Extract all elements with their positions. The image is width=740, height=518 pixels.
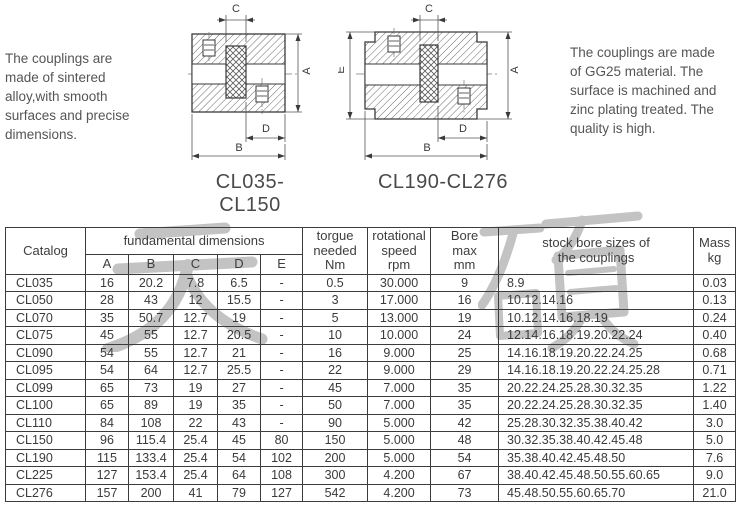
dim-label-d: D xyxy=(459,123,467,135)
spec-table-body: CL0351620.27.86.5-0.530.00098.90.03CL050… xyxy=(6,274,736,502)
dim-label-a: A xyxy=(509,66,518,74)
cell-c: 12.7 xyxy=(174,362,218,380)
cell-speed: 5.000 xyxy=(368,414,431,432)
coupling-drawing-large: C E A D B xyxy=(338,2,518,166)
cell-mass: 0.71 xyxy=(694,362,736,380)
col-header-fundamental-dimensions: fundamental dimensions xyxy=(86,228,303,255)
col-header-dim-e: E xyxy=(261,255,303,275)
cell-bore: 16 xyxy=(431,292,499,310)
col-header-dim-b: B xyxy=(129,255,174,275)
cell-c: 12.7 xyxy=(174,327,218,345)
cell-stock: 8.9 xyxy=(499,274,694,292)
catalog-page: { "notes": { "left": "The couplings are\… xyxy=(0,0,740,518)
cell-e: 80 xyxy=(261,432,303,450)
cell-catalog: CL276 xyxy=(6,484,86,502)
table-row: CL10065891935-507.0003520.22.24.25.28.30… xyxy=(6,397,736,415)
cell-e: - xyxy=(261,379,303,397)
cell-c: 25.4 xyxy=(174,467,218,485)
table-row: CL15096115.425.445801505.0004830.32.35.3… xyxy=(6,432,736,450)
cell-c: 25.4 xyxy=(174,432,218,450)
cell-e: - xyxy=(261,414,303,432)
cell-catalog: CL110 xyxy=(6,414,86,432)
cell-d: 25.5 xyxy=(218,362,261,380)
cell-speed: 30.000 xyxy=(368,274,431,292)
cell-speed: 7.000 xyxy=(368,397,431,415)
dim-label-a: A xyxy=(301,67,312,75)
cell-bore: 35 xyxy=(431,397,499,415)
cell-torque: 5 xyxy=(303,309,368,327)
cell-a: 157 xyxy=(86,484,129,502)
cell-mass: 0.13 xyxy=(694,292,736,310)
cell-bore: 73 xyxy=(431,484,499,502)
cell-speed: 4.200 xyxy=(368,484,431,502)
cell-e: - xyxy=(261,309,303,327)
cell-mass: 1.22 xyxy=(694,379,736,397)
table-row: CL190115133.425.4541022005.0005435.38.40… xyxy=(6,449,736,467)
table-row: CL075455512.720.5-1010.0002412.14.16.18.… xyxy=(6,327,736,345)
cell-speed: 4.200 xyxy=(368,467,431,485)
cell-e: - xyxy=(261,362,303,380)
right-description-text: The couplings are made of GG25 material.… xyxy=(570,44,738,138)
cell-speed: 5.000 xyxy=(368,449,431,467)
drawing-caption-large-range: CL190-CL276 xyxy=(363,171,523,194)
cell-catalog: CL090 xyxy=(6,344,86,362)
col-header-stock-bores: stock bore sizes of the couplings xyxy=(499,228,694,275)
cell-c: 19 xyxy=(174,397,218,415)
cell-d: 21 xyxy=(218,344,261,362)
cell-a: 28 xyxy=(86,292,129,310)
drawing-caption-small-range: CL035-CL150 xyxy=(186,171,314,217)
cell-torque: 300 xyxy=(303,467,368,485)
left-description-text: The couplings are made of sintered alloy… xyxy=(5,50,175,144)
cell-bore: 9 xyxy=(431,274,499,292)
cell-b: 55 xyxy=(129,344,174,362)
cell-speed: 17.000 xyxy=(368,292,431,310)
cell-catalog: CL100 xyxy=(6,397,86,415)
cell-c: 41 xyxy=(174,484,218,502)
cell-stock: 45.48.50.55.60.65.70 xyxy=(499,484,694,502)
cell-a: 127 xyxy=(86,467,129,485)
cell-b: 20.2 xyxy=(129,274,174,292)
cell-catalog: CL095 xyxy=(6,362,86,380)
cell-bore: 19 xyxy=(431,309,499,327)
cell-torque: 3 xyxy=(303,292,368,310)
cell-stock: 14.16.18.19.20.22.24.25 xyxy=(499,344,694,362)
cell-b: 73 xyxy=(129,379,174,397)
cell-c: 12.7 xyxy=(174,344,218,362)
cell-torque: 90 xyxy=(303,414,368,432)
cell-a: 65 xyxy=(86,379,129,397)
dim-label-b: B xyxy=(235,142,242,154)
cell-a: 54 xyxy=(86,344,129,362)
spec-table: Catalog fundamental dimensions torgue ne… xyxy=(5,227,736,502)
cell-d: 79 xyxy=(218,484,261,502)
cell-catalog: CL070 xyxy=(6,309,86,327)
table-row: CL0703550.712.719-513.0001910.12.14.16.1… xyxy=(6,309,736,327)
cell-torque: 542 xyxy=(303,484,368,502)
col-header-dim-d: D xyxy=(218,255,261,275)
cell-mass: 0.68 xyxy=(694,344,736,362)
cell-c: 7.8 xyxy=(174,274,218,292)
cell-stock: 20.22.24.25.28.30.32.35 xyxy=(499,379,694,397)
cell-stock: 12.14.16.18.19.20.22.24 xyxy=(499,327,694,345)
cell-b: 55 xyxy=(129,327,174,345)
cell-stock: 38.40.42.45.48.50.55.60.65 xyxy=(499,467,694,485)
cell-bore: 25 xyxy=(431,344,499,362)
cell-bore: 24 xyxy=(431,327,499,345)
cell-stock: 20.22.24.25.28.30.32.35 xyxy=(499,397,694,415)
cell-torque: 10 xyxy=(303,327,368,345)
col-header-torque: torgue needed Nm xyxy=(303,228,368,275)
cell-torque: 0.5 xyxy=(303,274,368,292)
cell-speed: 7.000 xyxy=(368,379,431,397)
col-header-dim-c: C xyxy=(174,255,218,275)
cell-b: 64 xyxy=(129,362,174,380)
cell-e: - xyxy=(261,327,303,345)
cell-bore: 29 xyxy=(431,362,499,380)
cell-b: 200 xyxy=(129,484,174,502)
cell-torque: 22 xyxy=(303,362,368,380)
table-row: CL090545512.721-169.0002514.16.18.19.20.… xyxy=(6,344,736,362)
cell-bore: 67 xyxy=(431,467,499,485)
cell-e: 108 xyxy=(261,467,303,485)
col-header-mass: Mass kg xyxy=(694,228,736,275)
cell-mass: 0.40 xyxy=(694,327,736,345)
cell-mass: 0.03 xyxy=(694,274,736,292)
cell-speed: 9.000 xyxy=(368,344,431,362)
cell-d: 20.5 xyxy=(218,327,261,345)
table-row: CL27615720041791275424.2007345.48.50.55.… xyxy=(6,484,736,502)
cell-d: 54 xyxy=(218,449,261,467)
cell-e: - xyxy=(261,292,303,310)
cell-bore: 48 xyxy=(431,432,499,450)
cell-d: 45 xyxy=(218,432,261,450)
cell-a: 115 xyxy=(86,449,129,467)
cell-catalog: CL190 xyxy=(6,449,86,467)
cell-d: 27 xyxy=(218,379,261,397)
dim-label-c: C xyxy=(232,3,240,15)
cell-mass: 21.0 xyxy=(694,484,736,502)
cell-b: 108 xyxy=(129,414,174,432)
cell-catalog: CL150 xyxy=(6,432,86,450)
cell-mass: 3.0 xyxy=(694,414,736,432)
cell-d: 6.5 xyxy=(218,274,261,292)
table-row: CL225127153.425.4641083004.2006738.40.42… xyxy=(6,467,736,485)
cell-stock: 10.12.14.16 xyxy=(499,292,694,310)
cell-e: - xyxy=(261,274,303,292)
cell-a: 54 xyxy=(86,362,129,380)
cell-mass: 9.0 xyxy=(694,467,736,485)
cell-c: 19 xyxy=(174,379,218,397)
cell-b: 115.4 xyxy=(129,432,174,450)
col-header-dim-a: A xyxy=(86,255,129,275)
table-row: CL05028431215.5-317.0001610.12.14.160.13 xyxy=(6,292,736,310)
cell-a: 84 xyxy=(86,414,129,432)
cell-e: 102 xyxy=(261,449,303,467)
cell-mass: 1.40 xyxy=(694,397,736,415)
cell-catalog: CL050 xyxy=(6,292,86,310)
cell-speed: 13.000 xyxy=(368,309,431,327)
cell-a: 35 xyxy=(86,309,129,327)
col-header-speed: rotational speed rpm xyxy=(368,228,431,275)
cell-speed: 10.000 xyxy=(368,327,431,345)
cell-d: 15.5 xyxy=(218,292,261,310)
cell-torque: 16 xyxy=(303,344,368,362)
cell-b: 153.4 xyxy=(129,467,174,485)
cell-catalog: CL035 xyxy=(6,274,86,292)
cell-c: 22 xyxy=(174,414,218,432)
cell-d: 43 xyxy=(218,414,261,432)
cell-e: - xyxy=(261,344,303,362)
cell-d: 35 xyxy=(218,397,261,415)
cell-stock: 25.28.30.32.35.38.40.42 xyxy=(499,414,694,432)
cell-b: 43 xyxy=(129,292,174,310)
cell-speed: 5.000 xyxy=(368,432,431,450)
cell-b: 50.7 xyxy=(129,309,174,327)
cell-speed: 9.000 xyxy=(368,362,431,380)
table-row: CL09965731927-457.0003520.22.24.25.28.30… xyxy=(6,379,736,397)
cell-stock: 35.38.40.42.45.48.50 xyxy=(499,449,694,467)
cell-a: 96 xyxy=(86,432,129,450)
cell-torque: 150 xyxy=(303,432,368,450)
cell-stock: 14.16.18.19.20.22.24.25.28 xyxy=(499,362,694,380)
table-row: CL110841082243-905.0004225.28.30.32.35.3… xyxy=(6,414,736,432)
cell-e: 127 xyxy=(261,484,303,502)
coupling-drawing-small: C A D B xyxy=(188,2,312,166)
cell-stock: 30.32.35.38.40.42.45.48 xyxy=(499,432,694,450)
cell-torque: 50 xyxy=(303,397,368,415)
cell-torque: 45 xyxy=(303,379,368,397)
cell-c: 12.7 xyxy=(174,309,218,327)
cell-d: 64 xyxy=(218,467,261,485)
cell-d: 19 xyxy=(218,309,261,327)
spec-table-header: Catalog fundamental dimensions torgue ne… xyxy=(6,228,736,275)
cell-e: - xyxy=(261,397,303,415)
cell-bore: 35 xyxy=(431,379,499,397)
cell-b: 133.4 xyxy=(129,449,174,467)
cell-bore: 42 xyxy=(431,414,499,432)
cell-bore: 54 xyxy=(431,449,499,467)
table-row: CL095546412.725.5-229.0002914.16.18.19.2… xyxy=(6,362,736,380)
dim-label-c: C xyxy=(425,3,433,15)
cell-catalog: CL099 xyxy=(6,379,86,397)
col-header-catalog: Catalog xyxy=(6,228,86,275)
cell-torque: 200 xyxy=(303,449,368,467)
cell-mass: 7.6 xyxy=(694,449,736,467)
cell-catalog: CL075 xyxy=(6,327,86,345)
cell-a: 65 xyxy=(86,397,129,415)
cell-mass: 5.0 xyxy=(694,432,736,450)
table-row: CL0351620.27.86.5-0.530.00098.90.03 xyxy=(6,274,736,292)
dim-label-b: B xyxy=(423,142,430,154)
cell-catalog: CL225 xyxy=(6,467,86,485)
dim-label-d: D xyxy=(262,123,270,135)
cell-a: 45 xyxy=(86,327,129,345)
cell-mass: 0.24 xyxy=(694,309,736,327)
cell-a: 16 xyxy=(86,274,129,292)
dim-label-e: E xyxy=(338,66,347,73)
cell-b: 89 xyxy=(129,397,174,415)
cell-c: 12 xyxy=(174,292,218,310)
cell-c: 25.4 xyxy=(174,449,218,467)
cell-stock: 10.12.14.16.18.19 xyxy=(499,309,694,327)
col-header-bore-max: Bore max mm xyxy=(431,228,499,275)
